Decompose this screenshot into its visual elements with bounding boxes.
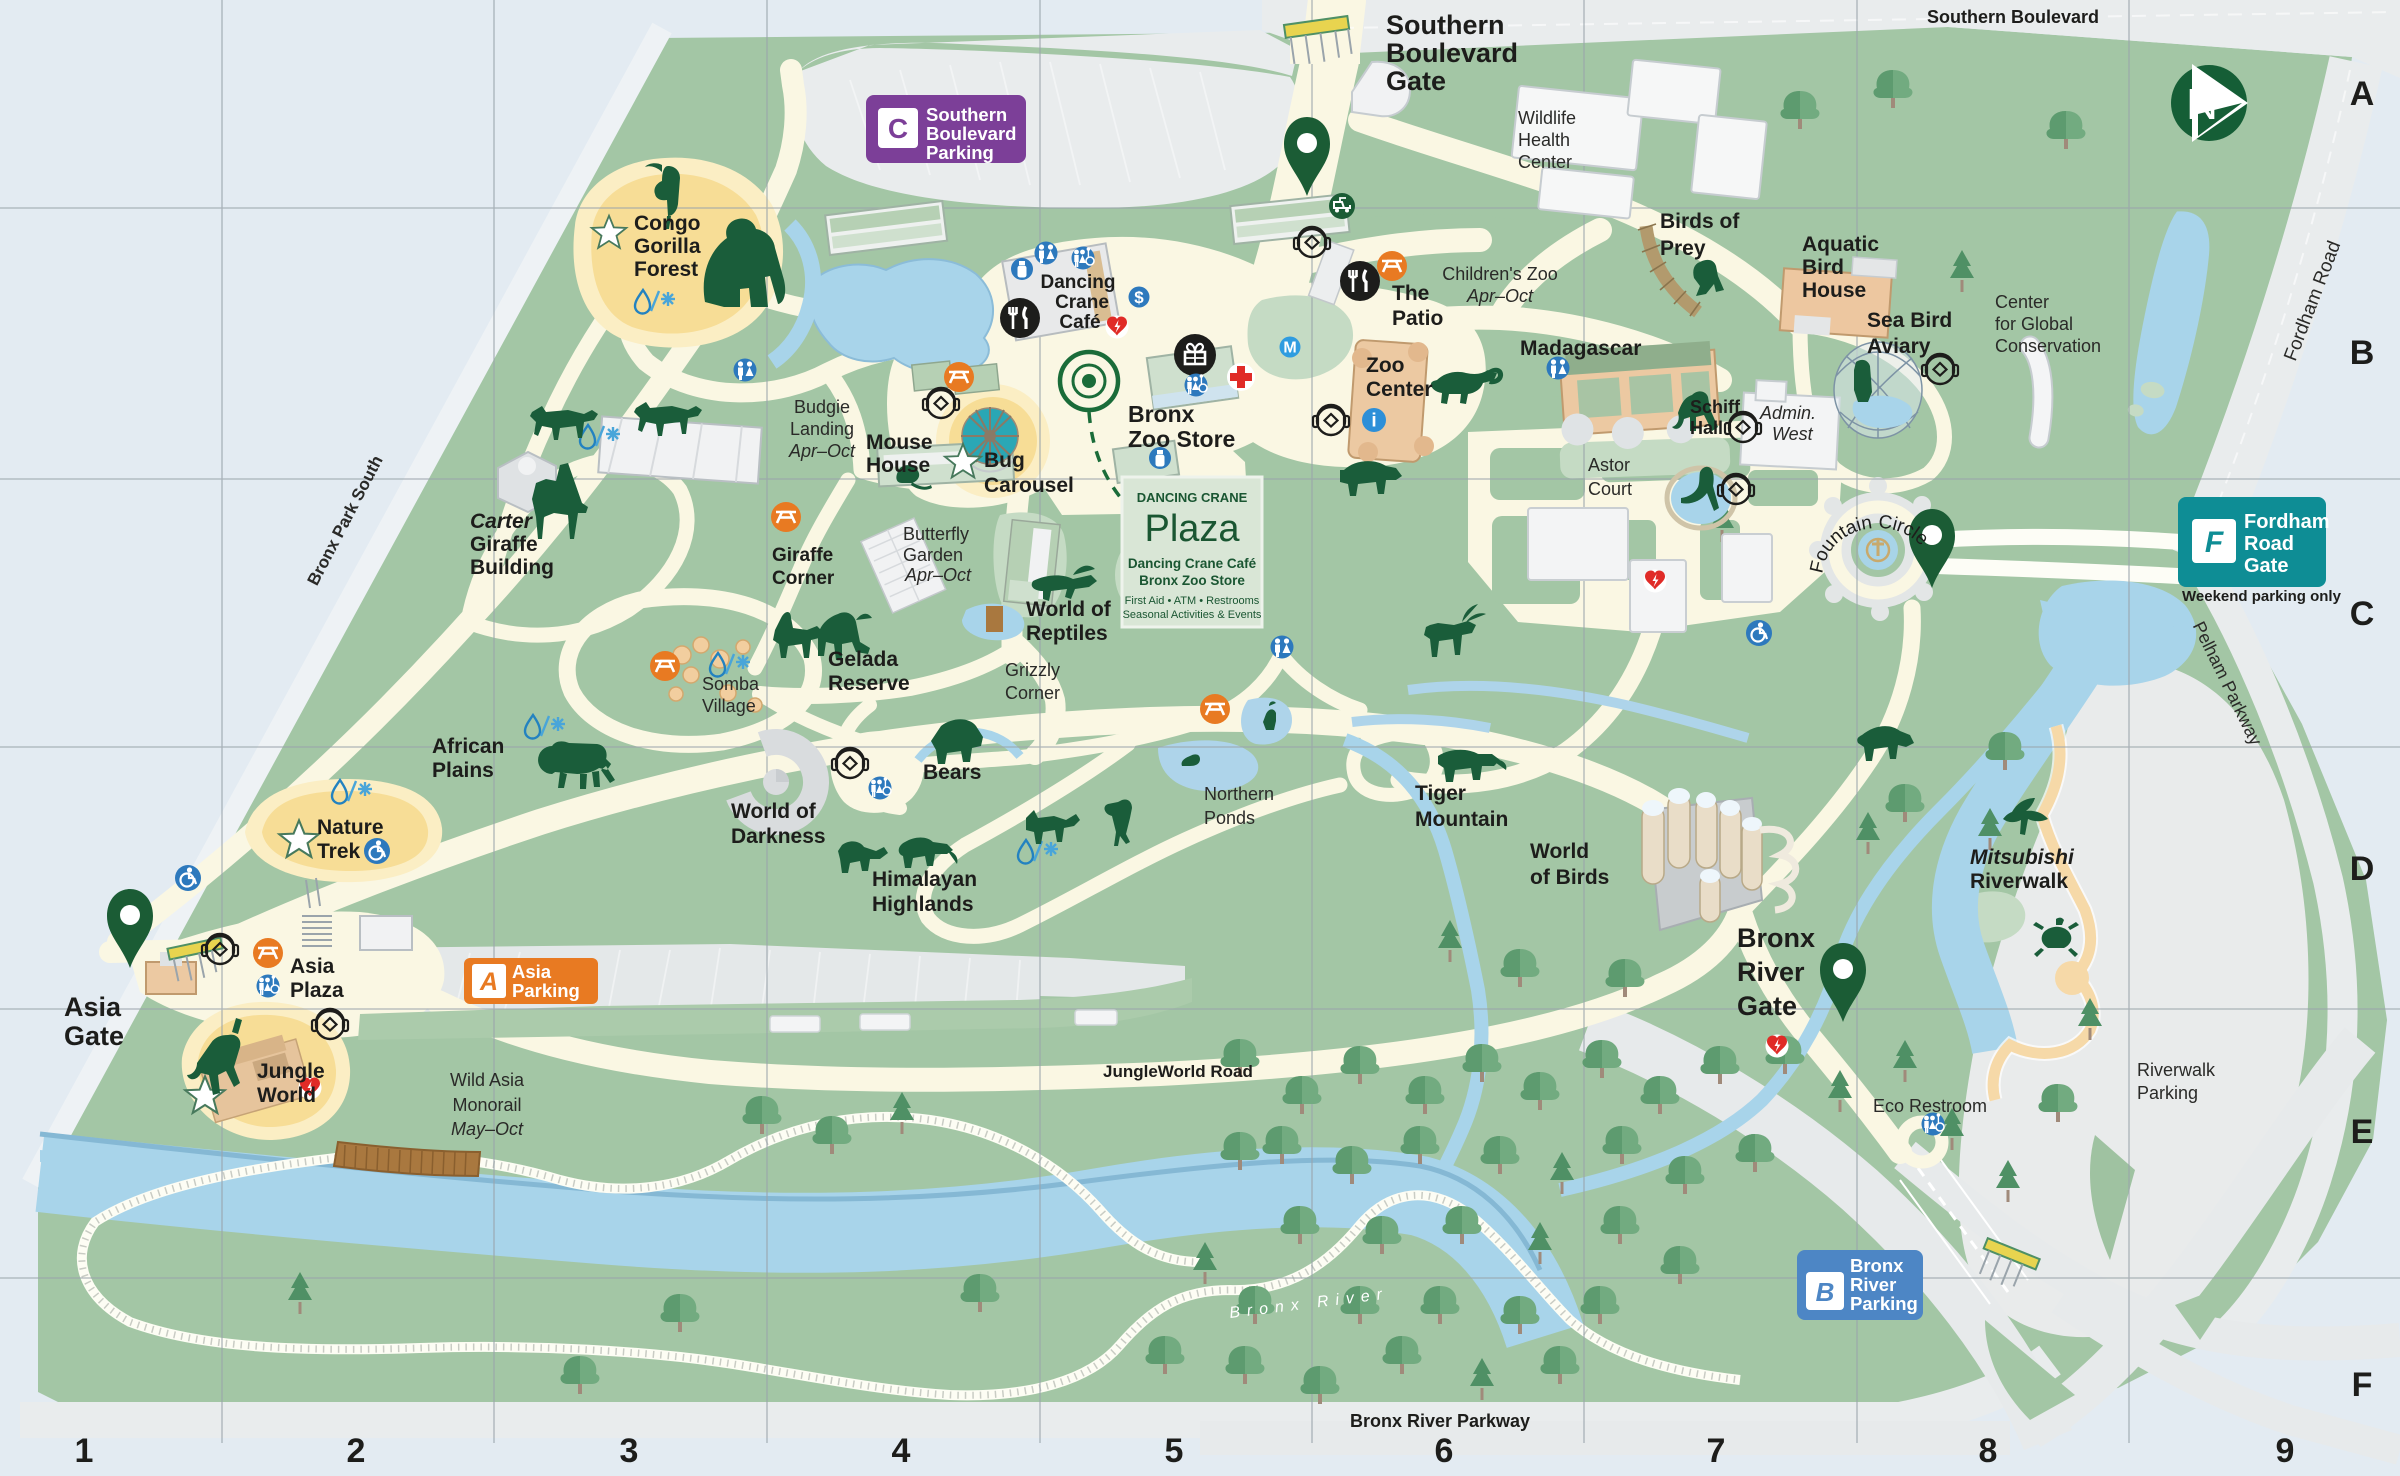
svg-text:Riverwalk: Riverwalk [2137, 1060, 2216, 1080]
svg-text:DANCING CRANE: DANCING CRANE [1137, 490, 1248, 505]
svg-text:9: 9 [2276, 1432, 2295, 1470]
svg-text:4: 4 [892, 1432, 911, 1470]
svg-text:Patio: Patio [1392, 307, 1443, 330]
svg-text:Carter: Carter [470, 510, 534, 533]
svg-text:Nature: Nature [317, 816, 384, 839]
svg-text:Budgie: Budgie [794, 397, 850, 417]
svg-text:Bronx: Bronx [1850, 1255, 1904, 1276]
svg-text:5: 5 [1165, 1432, 1184, 1470]
svg-text:Mitsubishi: Mitsubishi [1970, 846, 2075, 869]
svg-text:Highlands: Highlands [872, 893, 974, 916]
svg-text:Asia: Asia [290, 955, 335, 978]
svg-text:Prey: Prey [1660, 237, 1706, 260]
svg-text:E: E [2351, 1113, 2374, 1151]
svg-text:Parking: Parking [2137, 1083, 2198, 1103]
svg-text:Parking: Parking [926, 142, 994, 163]
svg-text:Monorail: Monorail [452, 1095, 521, 1115]
svg-text:Children's Zoo: Children's Zoo [1442, 264, 1558, 284]
svg-text:Bears: Bears [923, 761, 981, 784]
svg-text:Wildlife: Wildlife [1518, 108, 1576, 128]
svg-text:Admin.: Admin. [1759, 403, 1816, 423]
svg-text:Trek: Trek [317, 840, 361, 863]
svg-text:Building: Building [470, 556, 554, 579]
svg-text:Darkness: Darkness [731, 825, 826, 848]
svg-text:House: House [866, 454, 930, 477]
svg-text:Parking: Parking [1850, 1293, 1918, 1314]
svg-text:Astor: Astor [1588, 455, 1630, 475]
svg-text:Café: Café [1059, 312, 1100, 333]
svg-text:May–Oct: May–Oct [451, 1119, 524, 1139]
svg-text:Crane: Crane [1055, 292, 1109, 313]
svg-text:B: B [1816, 1277, 1835, 1307]
svg-text:Reptiles: Reptiles [1026, 622, 1108, 645]
svg-text:Fordham: Fordham [2244, 511, 2330, 533]
svg-text:Garden: Garden [903, 545, 963, 565]
svg-text:Wild Asia: Wild Asia [450, 1070, 525, 1090]
svg-text:Northern: Northern [1204, 784, 1274, 804]
svg-text:Gelada: Gelada [828, 648, 898, 671]
svg-text:8: 8 [1979, 1432, 1998, 1470]
svg-text:Somba: Somba [702, 674, 760, 694]
svg-text:World of: World of [1026, 598, 1112, 621]
svg-text:Corner: Corner [772, 568, 835, 589]
svg-text:Health: Health [1518, 130, 1570, 150]
svg-text:Gate: Gate [1737, 991, 1797, 1021]
svg-text:First Aid • ATM • Restrooms: First Aid • ATM • Restrooms [1125, 595, 1260, 607]
svg-text:Aviary: Aviary [1867, 335, 1931, 358]
svg-text:F: F [2205, 526, 2224, 559]
svg-text:Village: Village [702, 696, 756, 716]
svg-text:Tiger: Tiger [1415, 782, 1466, 805]
svg-text:River: River [1850, 1274, 1896, 1295]
svg-text:World: World [257, 1084, 316, 1107]
svg-text:Mouse: Mouse [866, 431, 933, 454]
svg-text:Congo: Congo [634, 212, 700, 235]
svg-text:Butterfly: Butterfly [903, 524, 969, 544]
svg-text:Asia: Asia [512, 961, 552, 982]
svg-text:Bronx: Bronx [1128, 401, 1195, 427]
svg-text:World: World [1530, 840, 1589, 863]
svg-text:Boulevard: Boulevard [926, 123, 1016, 144]
svg-text:C: C [888, 113, 908, 144]
svg-text:Road: Road [2244, 533, 2294, 555]
svg-text:Grizzly: Grizzly [1005, 660, 1060, 680]
svg-text:A: A [479, 968, 498, 996]
svg-text:6: 6 [1435, 1432, 1454, 1470]
svg-text:Conservation: Conservation [1995, 336, 2101, 356]
svg-text:Seasonal Activities & Events: Seasonal Activities & Events [1123, 609, 1262, 621]
svg-text:Bronx: Bronx [1737, 923, 1815, 953]
svg-text:Corner: Corner [1005, 683, 1060, 703]
svg-text:JungleWorld Road: JungleWorld Road [1103, 1062, 1253, 1081]
svg-text:Birds of: Birds of [1660, 210, 1740, 233]
svg-text:Gate: Gate [1386, 66, 1446, 96]
svg-text:Dancing Crane Café: Dancing Crane Café [1128, 556, 1257, 571]
svg-text:Zoo Store: Zoo Store [1128, 426, 1235, 452]
svg-text:3: 3 [620, 1432, 639, 1470]
svg-text:Sea Bird: Sea Bird [1867, 309, 1952, 332]
svg-text:Himalayan: Himalayan [872, 868, 977, 891]
svg-text:Ponds: Ponds [1204, 808, 1255, 828]
svg-text:Mountain: Mountain [1415, 808, 1508, 831]
svg-text:World of: World of [731, 800, 817, 823]
svg-text:N: N [2186, 80, 2218, 129]
svg-text:Plaza: Plaza [1144, 508, 1240, 550]
svg-text:Gate: Gate [2244, 555, 2288, 577]
svg-text:7: 7 [1707, 1432, 1726, 1470]
svg-text:Center: Center [1366, 378, 1433, 401]
svg-text:D: D [2350, 850, 2375, 888]
svg-text:African: African [432, 735, 504, 758]
svg-text:Schiff: Schiff [1690, 397, 1741, 417]
svg-text:C: C [2350, 595, 2375, 633]
svg-text:Forest: Forest [634, 258, 698, 281]
svg-text:Jungle: Jungle [257, 1060, 325, 1083]
svg-text:Asia: Asia [64, 992, 122, 1022]
svg-text:Aquatic: Aquatic [1802, 233, 1879, 256]
svg-text:Plains: Plains [432, 759, 494, 782]
svg-text:The: The [1392, 282, 1429, 305]
svg-text:Apr–Oct: Apr–Oct [904, 565, 972, 585]
svg-text:Madagascar: Madagascar [1520, 337, 1641, 360]
svg-text:2: 2 [347, 1432, 366, 1470]
svg-text:B: B [2350, 334, 2375, 372]
svg-text:Zoo: Zoo [1366, 354, 1404, 377]
svg-text:Carousel: Carousel [984, 474, 1074, 497]
svg-text:Hall: Hall [1690, 418, 1723, 438]
svg-text:Bronx Zoo Store: Bronx Zoo Store [1139, 573, 1245, 588]
svg-text:Apr–Oct: Apr–Oct [1466, 286, 1534, 306]
svg-text:Plaza: Plaza [290, 979, 344, 1002]
svg-text:Dancing: Dancing [1041, 272, 1116, 293]
svg-text:Southern: Southern [1386, 10, 1505, 40]
svg-text:Court: Court [1588, 479, 1632, 499]
svg-text:Bug: Bug [984, 449, 1025, 472]
svg-text:Center: Center [1518, 152, 1572, 172]
svg-text:Eco Restroom: Eco Restroom [1873, 1096, 1987, 1116]
svg-text:House: House [1802, 279, 1866, 302]
svg-text:Giraffe: Giraffe [772, 545, 833, 566]
svg-text:Giraffe: Giraffe [470, 533, 538, 556]
svg-text:River: River [1737, 957, 1805, 987]
svg-text:Boulevard: Boulevard [1386, 38, 1518, 68]
svg-text:Bird: Bird [1802, 256, 1844, 279]
svg-text:F: F [2352, 1366, 2373, 1404]
svg-text:of Birds: of Birds [1530, 866, 1609, 889]
svg-text:Gate: Gate [64, 1021, 124, 1051]
svg-text:Reserve: Reserve [828, 672, 910, 695]
svg-text:Riverwalk: Riverwalk [1970, 870, 2068, 893]
svg-text:Apr–Oct: Apr–Oct [788, 441, 856, 461]
svg-text:Parking: Parking [512, 980, 580, 1001]
svg-text:Weekend parking only: Weekend parking only [2182, 588, 2342, 605]
svg-text:1: 1 [75, 1432, 94, 1470]
svg-text:Bronx River Parkway: Bronx River Parkway [1350, 1411, 1530, 1431]
svg-text:Center: Center [1995, 292, 2049, 312]
svg-text:Southern: Southern [926, 104, 1007, 125]
svg-text:for Global: for Global [1995, 314, 2073, 334]
svg-text:Gorilla: Gorilla [634, 235, 701, 258]
svg-text:A: A [2350, 75, 2375, 113]
svg-text:Southern Boulevard: Southern Boulevard [1927, 7, 2099, 27]
svg-text:West: West [1772, 424, 1814, 444]
svg-text:Landing: Landing [790, 419, 854, 439]
